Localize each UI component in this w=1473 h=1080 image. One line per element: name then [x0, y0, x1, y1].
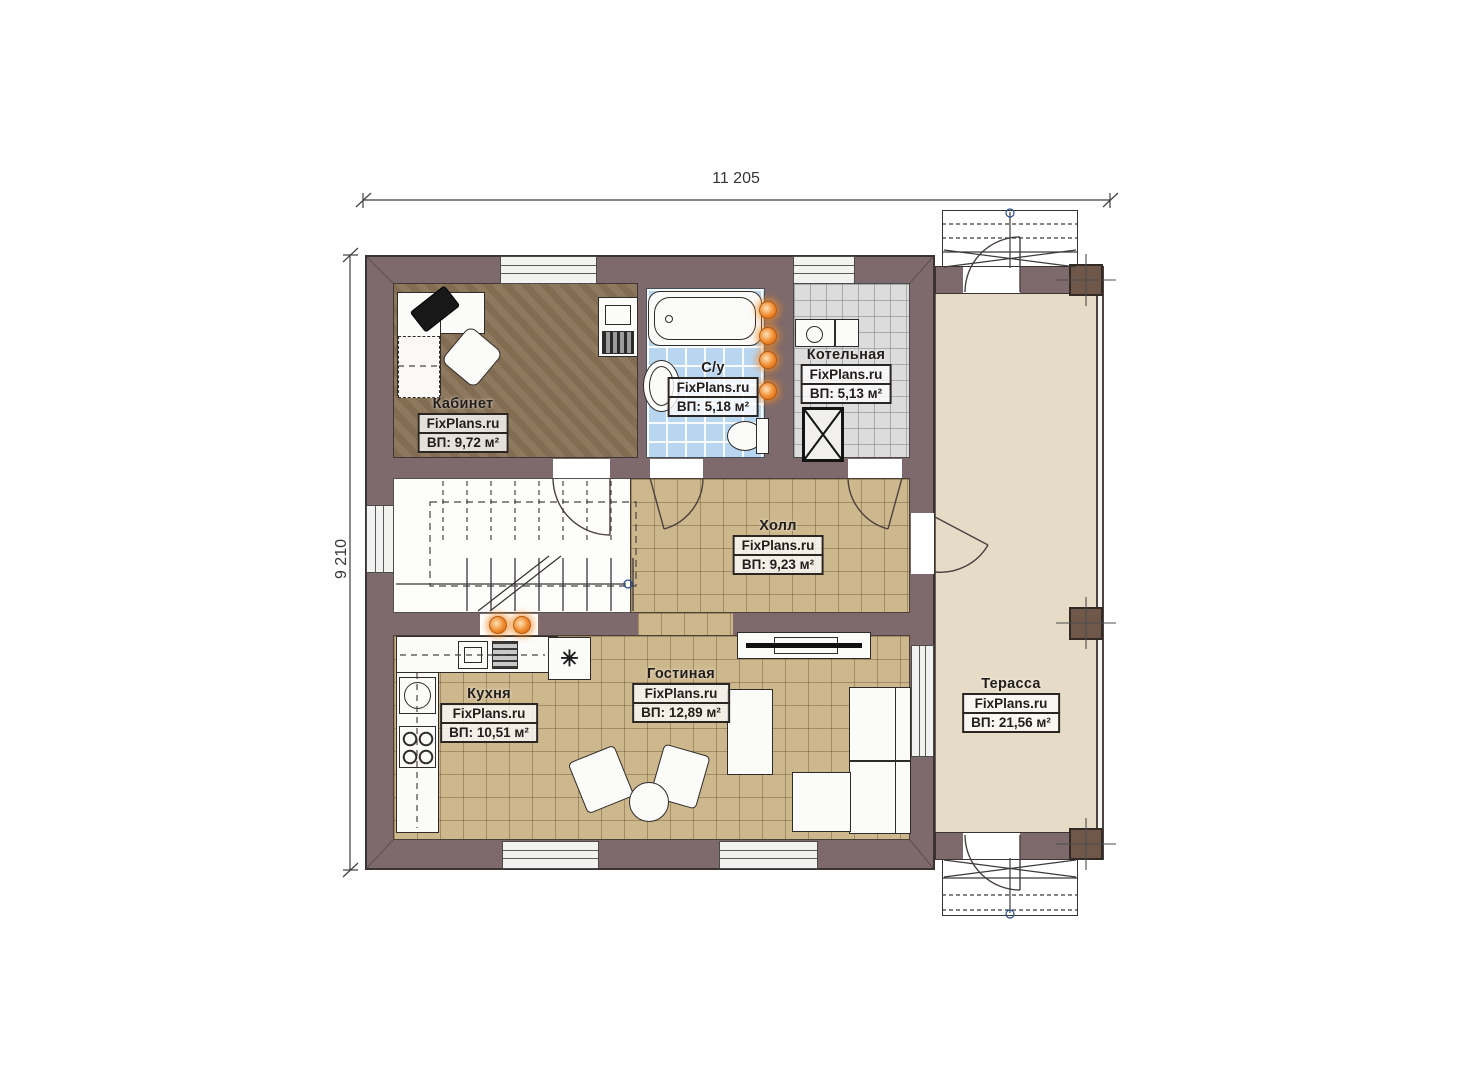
terrace-opening-bottom — [963, 833, 1020, 859]
window-top-1 — [500, 256, 597, 284]
kitchen-sink-icon — [399, 677, 436, 714]
radiator-icon — [513, 616, 531, 634]
window-bottom-1 — [502, 841, 599, 869]
window-right-living — [911, 645, 934, 757]
sofa-chaise — [792, 772, 851, 832]
room-label-kitchen: Кухня FixPlans.ru ВП: 10,51 м² — [440, 686, 538, 743]
dimension-left-label: 9 210 — [333, 529, 351, 589]
staircase-area — [393, 478, 638, 613]
window-bottom-2 — [719, 841, 818, 869]
radiator-icon — [759, 351, 777, 369]
hall-living-opening — [638, 613, 733, 636]
side-table — [629, 782, 669, 822]
exterior-stairs-bottom — [942, 858, 1078, 916]
window-left — [366, 505, 394, 573]
watermark: FixPlans.ru — [440, 703, 538, 724]
room-label-bathroom: С/у FixPlans.ru ВП: 5,18 м² — [668, 360, 759, 417]
radiator-icon — [759, 327, 777, 345]
utility-sink-icon — [600, 300, 636, 330]
sofa — [849, 687, 911, 834]
room-area: ВП: 10,51 м² — [440, 722, 538, 743]
room-label-hall: Холл FixPlans.ru ВП: 9,23 м² — [733, 518, 824, 575]
boiler-unit — [795, 319, 859, 347]
bathroom-door-opening — [650, 459, 703, 478]
dimension-top-label: 11 205 — [712, 170, 760, 188]
terrace-opening-top — [963, 267, 1020, 293]
tv-stand — [737, 632, 871, 659]
watermark: FixPlans.ru — [632, 683, 730, 704]
radiator-icon — [759, 301, 777, 319]
washer-grille-icon — [602, 331, 634, 354]
room-label-office: Кабинет FixPlans.ru ВП: 9,72 м² — [418, 396, 509, 453]
radiator-icon — [489, 616, 507, 634]
fridge-glyph: ✳ — [560, 646, 578, 672]
dishwasher-icon — [458, 641, 488, 669]
watermark: FixPlans.ru — [668, 377, 759, 398]
office-desk-underlay — [398, 336, 440, 398]
floor-plan-canvas: 11 205 9 210 — [0, 0, 1473, 1080]
room-area: ВП: 12,89 м² — [632, 702, 730, 723]
room-area: ВП: 5,13 м² — [801, 383, 892, 404]
stove-icon — [399, 726, 436, 768]
radiator-icon — [759, 382, 777, 400]
room-area: ВП: 9,72 м² — [418, 432, 509, 453]
watermark: FixPlans.ru — [733, 535, 824, 556]
watermark: FixPlans.ru — [801, 364, 892, 385]
terrace-door-opening — [911, 513, 934, 574]
room-label-living: Гостиная FixPlans.ru ВП: 12,89 м² — [632, 666, 730, 723]
fridge-icon: ✳ — [548, 637, 591, 680]
terrace-column-top — [1069, 264, 1103, 296]
room-name: Гостиная — [632, 666, 730, 682]
watermark: FixPlans.ru — [962, 693, 1060, 714]
room-name: Терасса — [962, 676, 1060, 692]
room-name: С/у — [668, 360, 759, 376]
watermark: FixPlans.ru — [418, 413, 509, 434]
room-label-boiler: Котельная FixPlans.ru ВП: 5,13 м² — [801, 347, 892, 404]
terrace-column-middle — [1069, 607, 1103, 640]
bathtub — [648, 291, 762, 346]
room-area: ВП: 21,56 м² — [962, 712, 1060, 733]
boiler-door-opening — [848, 459, 902, 478]
office-door-opening — [553, 459, 610, 478]
room-name: Котельная — [801, 347, 892, 363]
coffee-table — [727, 689, 773, 775]
room-area: ВП: 5,18 м² — [668, 396, 759, 417]
terrace-column-bottom — [1069, 828, 1103, 860]
terrace-railing — [1096, 266, 1104, 860]
room-name: Холл — [733, 518, 824, 534]
room-area: ВП: 9,23 м² — [733, 554, 824, 575]
room-name: Кухня — [440, 686, 538, 702]
window-top-2 — [793, 256, 855, 284]
exterior-stairs-top — [942, 210, 1078, 268]
terrace-floor — [935, 266, 1104, 860]
room-label-terrace: Терасса FixPlans.ru ВП: 21,56 м² — [962, 676, 1060, 733]
room-name: Кабинет — [418, 396, 509, 412]
chimney-shaft — [802, 407, 844, 462]
toilet-tank — [756, 418, 769, 454]
kitchen-drawers-icon — [492, 641, 518, 669]
